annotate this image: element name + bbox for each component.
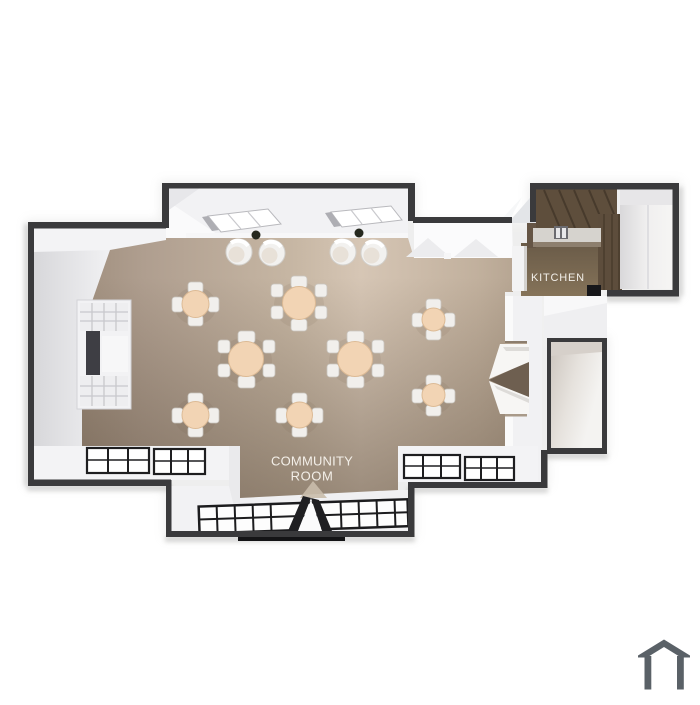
svg-text:COMMUNITY: COMMUNITY (271, 454, 353, 469)
svg-text:ROOM: ROOM (291, 469, 334, 484)
svg-text:KITCHEN: KITCHEN (531, 272, 585, 284)
